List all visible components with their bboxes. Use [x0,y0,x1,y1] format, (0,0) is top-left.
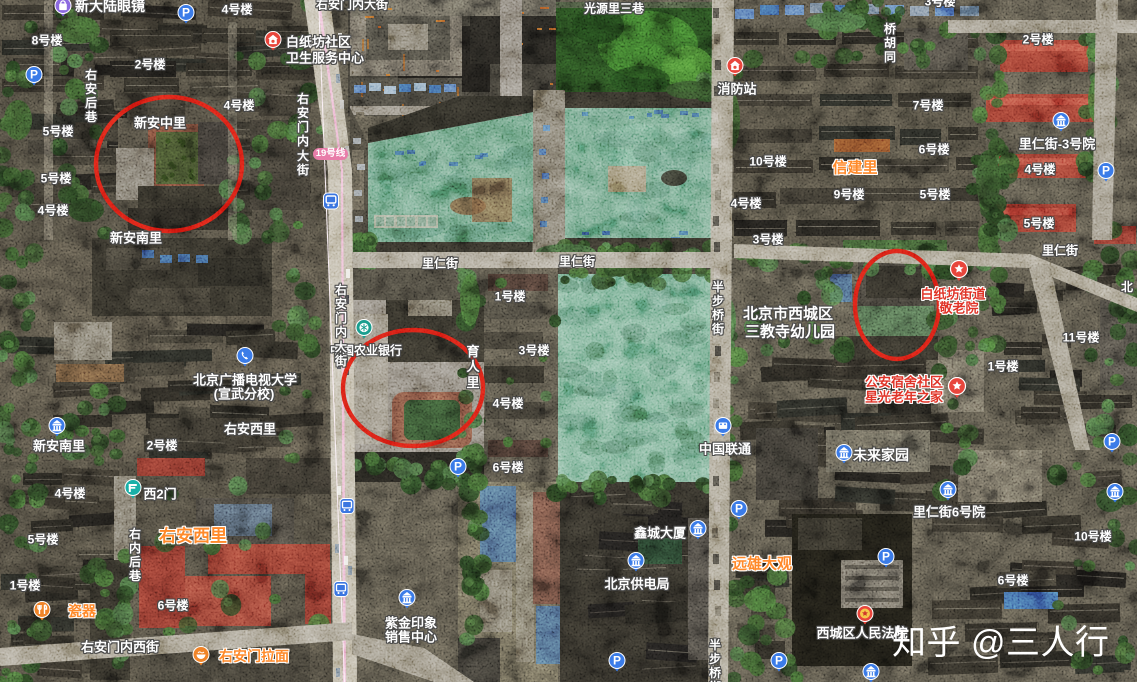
svg-text:P: P [613,654,621,668]
svg-text:P: P [735,502,743,516]
svg-text:P: P [1108,435,1116,449]
svg-text:P: P [30,68,38,82]
svg-text:P: P [775,654,783,668]
svg-text:P: P [182,6,190,20]
svg-text:P: P [454,460,462,474]
svg-text:P: P [1102,164,1110,178]
svg-text:P: P [882,550,890,564]
